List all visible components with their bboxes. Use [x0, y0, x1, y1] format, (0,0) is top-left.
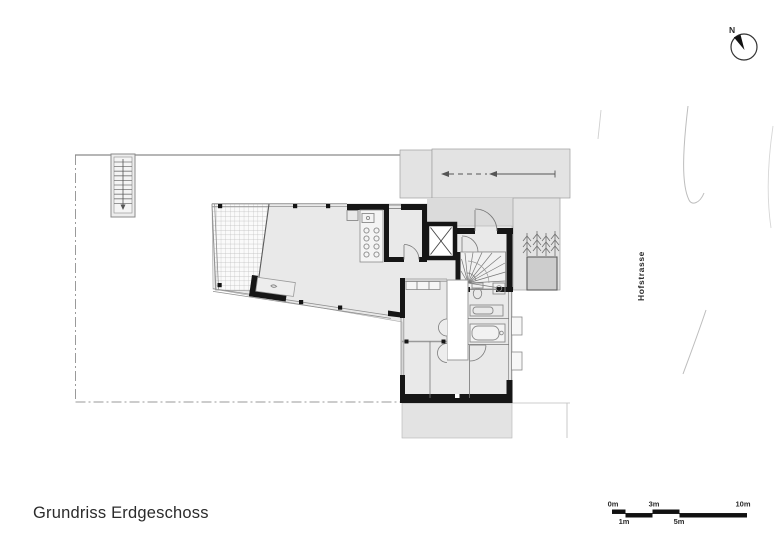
floor-plan-sheet: Hofstrasse — [0, 0, 780, 551]
planter-box — [527, 257, 557, 290]
scale-3m: 3m — [649, 500, 660, 509]
scale-10m: 10m — [735, 500, 750, 509]
north-label: N — [729, 25, 735, 35]
site-plan-drawing: Hofstrasse — [0, 0, 780, 551]
scale-1m: 1m — [619, 517, 630, 526]
bathtub-icon — [470, 324, 505, 342]
scale-5m: 5m — [674, 517, 685, 526]
page-title: Grundriss Erdgeschoss — [33, 504, 209, 523]
elevator — [427, 224, 455, 258]
street-edge-lines — [598, 106, 773, 374]
scale-0m: 0m — [608, 500, 619, 509]
sideboard — [406, 282, 440, 290]
north-arrow-icon — [734, 35, 745, 50]
service-core — [447, 280, 468, 360]
scale-bar: 0m 3m 10m 1m 5m — [608, 500, 751, 527]
north-arrow: N — [729, 25, 757, 60]
external-stair — [111, 154, 135, 217]
street-label: Hofstrasse — [636, 251, 646, 301]
